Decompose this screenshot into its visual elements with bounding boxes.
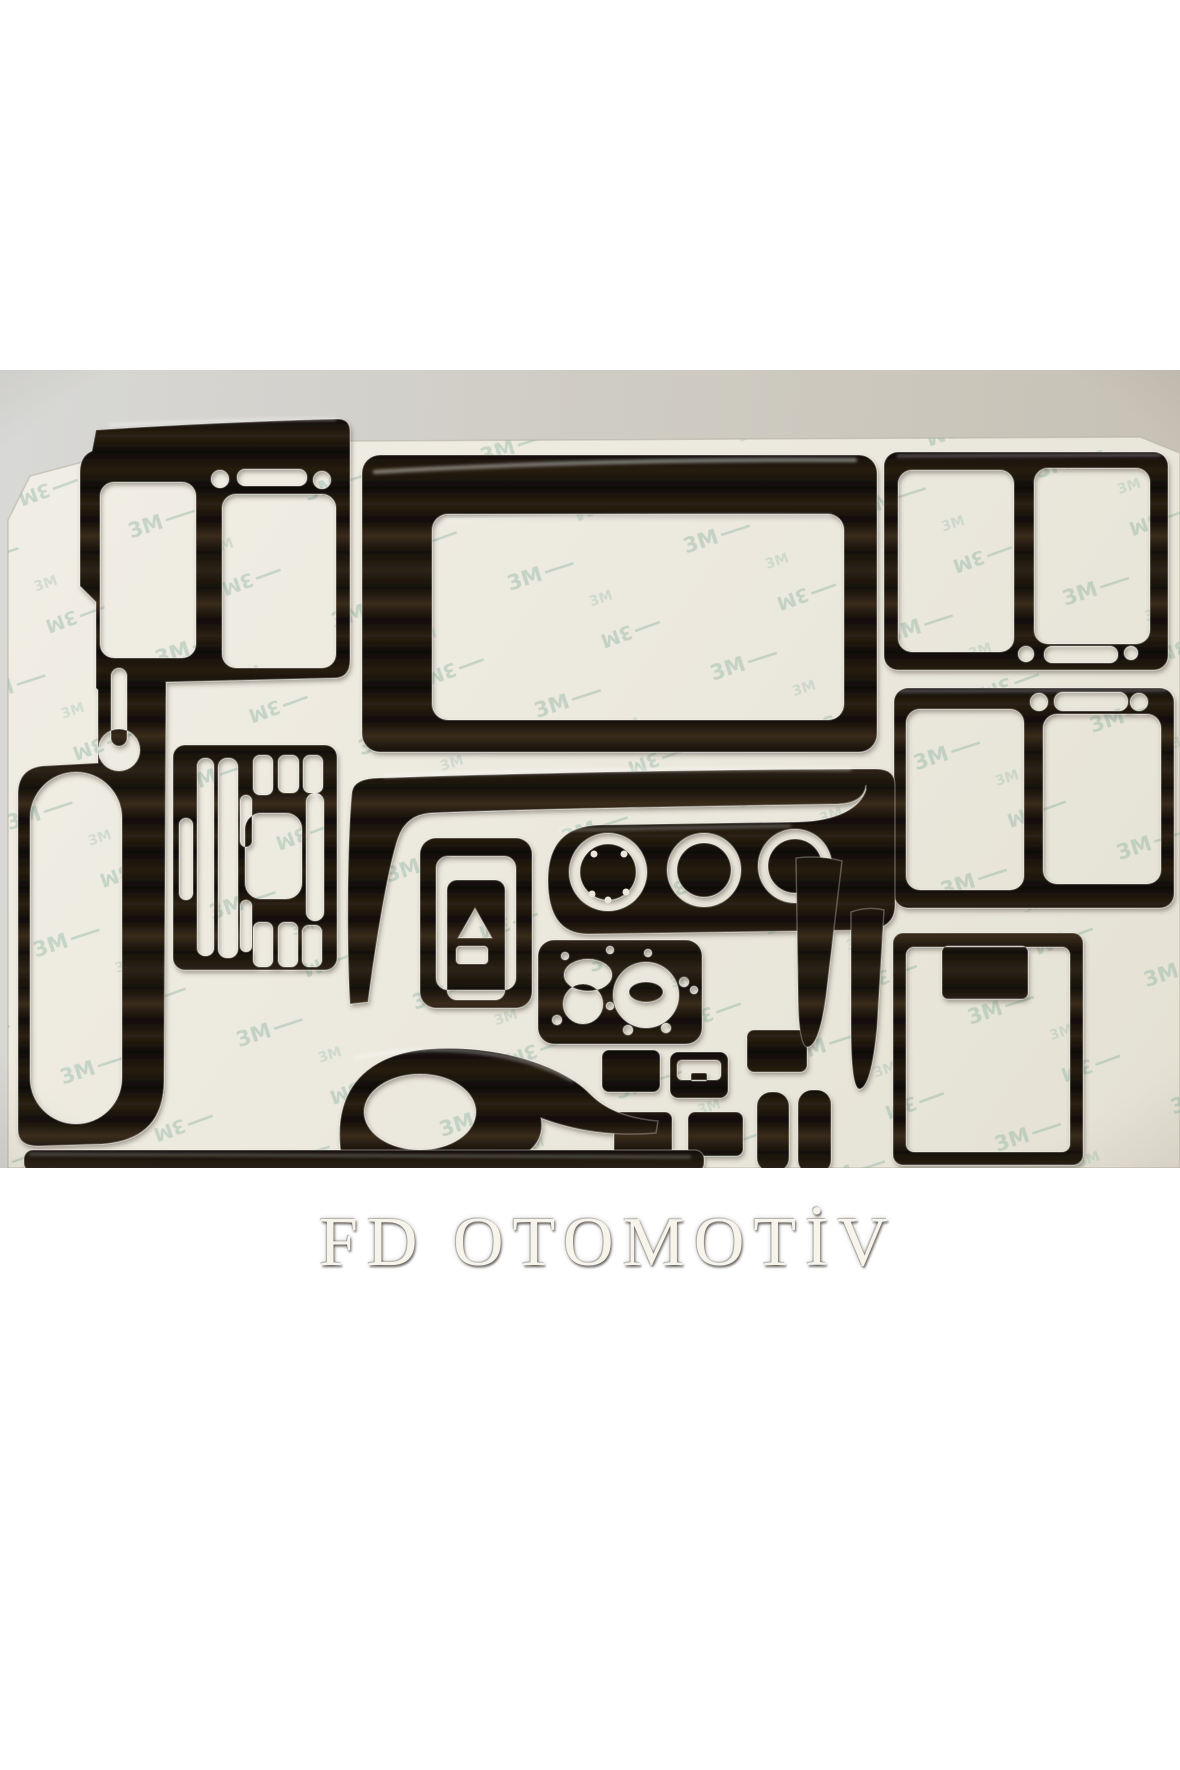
- trim-kit-photo: 3M 3M 3M: [0, 370, 1180, 1168]
- page: 3M 3M 3M FD OTOMOTİV: [0, 0, 1180, 1770]
- photo-vignette: [0, 370, 1180, 1168]
- product-photo: 3M 3M 3M: [0, 370, 1180, 1168]
- watermark-text: FD OTOMOTİV: [18, 1208, 1180, 1278]
